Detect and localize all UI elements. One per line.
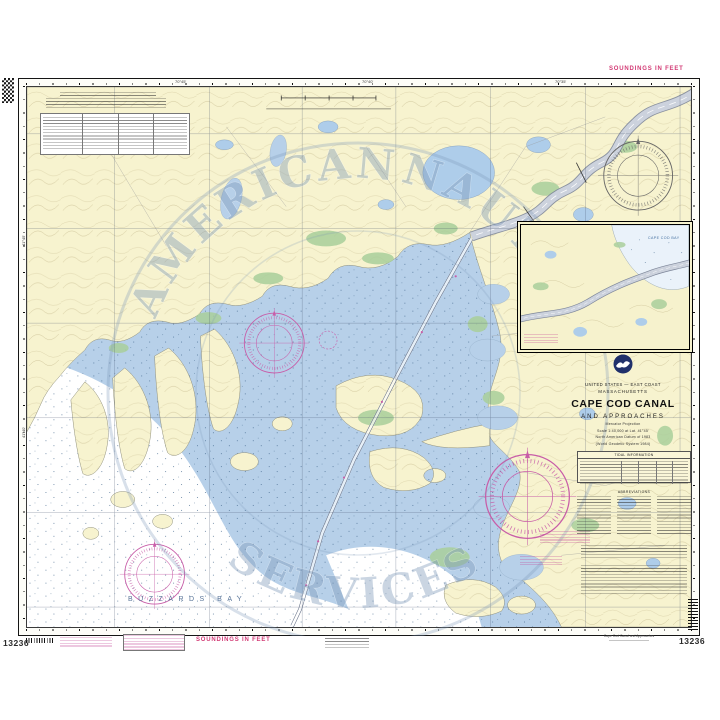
bottom-caption: Cape Cod Canal and Approaches <box>598 634 660 643</box>
bottom-boxed-note <box>123 634 185 651</box>
bottom-caption-line2 <box>609 640 649 643</box>
title-state: MASSACHUSETTS <box>552 389 694 394</box>
graticule-label-top-1: 70°45' <box>175 79 186 84</box>
tidal-table-title: TIDAL INFORMATION <box>578 452 690 459</box>
datum-line-2: (World Geodetic System 1984) <box>552 442 694 446</box>
datum-line: North American Datum of 1983 <box>552 435 694 439</box>
noaa-logo-icon <box>613 354 633 374</box>
magenta-note-1 <box>540 531 590 543</box>
barcode-right-edge <box>688 599 698 632</box>
tidal-information-table: TIDAL INFORMATION <box>577 451 691 483</box>
abbr-col-3 <box>657 496 691 536</box>
soundings-note-bottom: SOUNDINGS IN FEET <box>196 637 271 643</box>
projection-line: Mercator Projection <box>552 422 694 426</box>
title-country: UNITED STATES — EAST COAST <box>552 382 694 387</box>
abbr-col-2 <box>617 496 651 536</box>
graticule-label-left-2: 41°40' <box>21 427 26 438</box>
minute-ticks-bottom <box>26 629 692 631</box>
tide-table <box>40 113 190 155</box>
cape-cod-bay-label: CAPE COD BAY <box>648 236 680 240</box>
chart-title: CAPE COD CANAL <box>552 398 694 410</box>
scale-line: Scale 1:40,000 at Lat. 41°45' <box>552 429 694 433</box>
soundings-note-top: SOUNDINGS IN FEET <box>609 66 684 72</box>
screenshot-root: { "chart": { "number": "13236", "soundin… <box>0 0 720 720</box>
qr-code <box>2 78 14 103</box>
inset-note <box>524 334 558 343</box>
barcode-bottom-left <box>26 638 54 643</box>
note-block-1 <box>581 545 687 559</box>
note-paragraph <box>46 98 166 110</box>
abbreviations-block: ABBREVIATIONS <box>577 490 691 536</box>
title-block: UNITED STATES — EAST COAST MASSACHUSETTS… <box>552 354 694 446</box>
bottom-center-note <box>325 635 369 649</box>
chart-subtitle: AND APPROACHES <box>552 414 694 420</box>
graticule-label-top-3: 70°35' <box>555 79 566 84</box>
graticule-label-top-2: 70°40' <box>362 79 373 84</box>
abbr-col-1 <box>577 496 611 536</box>
note-heading <box>60 92 156 96</box>
chart-number-bottom-left: 13236 <box>3 638 29 648</box>
abbreviations-title: ABBREVIATIONS <box>577 490 691 494</box>
chart-number-bottom-right: 13236 <box>679 636 705 646</box>
note-block-2 <box>581 565 687 595</box>
magenta-note-2 <box>520 556 562 565</box>
graticule-label-left-1: 41°45' <box>21 235 26 246</box>
buzzards-bay-label: BUZZARDS BAY <box>128 596 247 603</box>
bottom-caption-line1: Cape Cod Canal and Approaches <box>598 634 660 639</box>
inset-canvas <box>521 225 689 349</box>
bottom-magenta-note <box>60 637 112 647</box>
inset-map-inner <box>520 224 690 350</box>
